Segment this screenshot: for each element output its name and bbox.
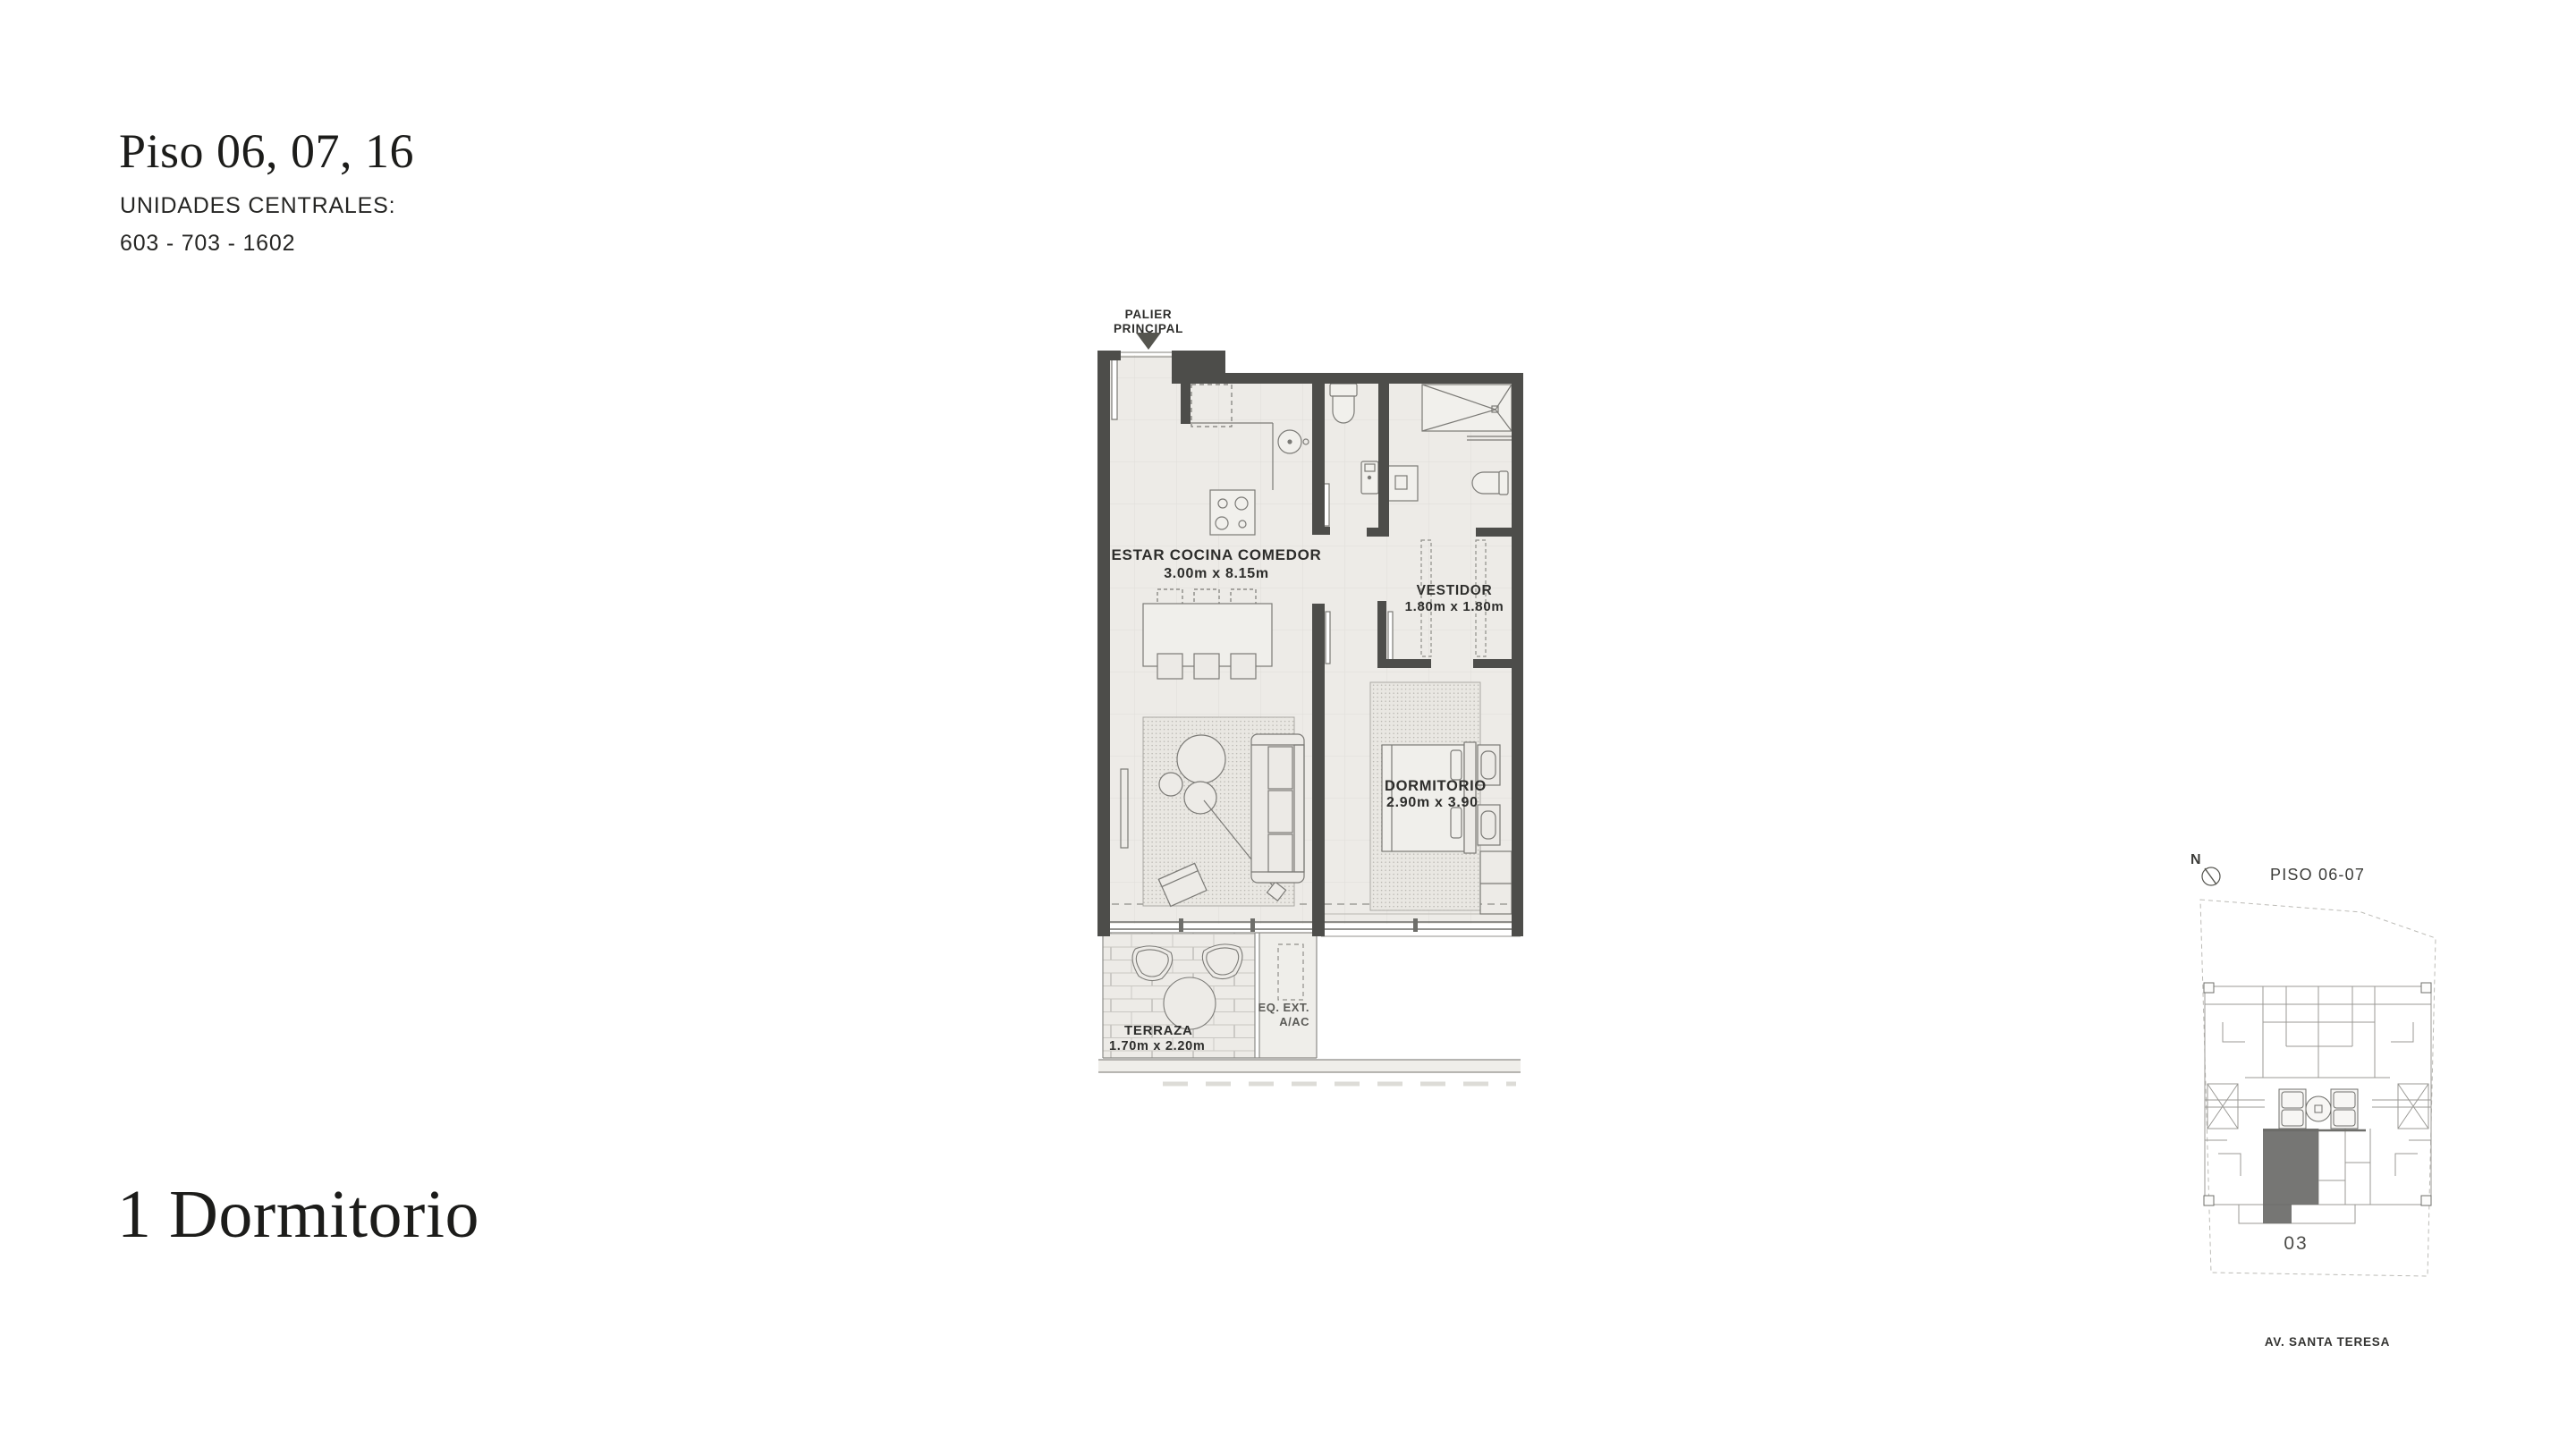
units-numbers: 603 - 703 - 1602: [120, 231, 295, 257]
vanity-cabinet: [1388, 466, 1418, 501]
entry-label: PALIER: [1125, 308, 1173, 321]
stove: [1210, 490, 1255, 535]
svg-text:1.80m x 1.80m: 1.80m x 1.80m: [1405, 599, 1504, 614]
toilet: [1330, 384, 1357, 396]
key-plan: N PISO 06-07: [2173, 841, 2455, 1359]
floor-plan: PALIER PRINCIPAL ESTAR COCINA COMEDOR 3.…: [1064, 291, 1547, 1087]
svg-text:A/AC: A/AC: [1279, 1015, 1309, 1028]
compass-icon: N: [2190, 852, 2220, 885]
typology-title: 1 Dormitorio: [117, 1180, 479, 1248]
page-title: Piso 06, 07, 16: [119, 127, 414, 175]
ac-label: EQ. EXT.: [1258, 1001, 1309, 1014]
terrace-table: [1164, 977, 1216, 1029]
building-core: [2263, 1089, 2366, 1130]
keyplan-title: PISO 06-07: [2270, 866, 2365, 884]
living-area: [1121, 717, 1304, 906]
corridor-door: [1326, 612, 1330, 664]
svg-text:PRINCIPAL: PRINCIPAL: [1114, 322, 1183, 335]
street-label: AV. SANTA TERESA: [2265, 1335, 2390, 1349]
svg-text:1.70m x 2.20m: 1.70m x 2.20m: [1109, 1039, 1205, 1053]
terrace-label: TERRAZA: [1124, 1023, 1193, 1038]
vestidor-label: VESTIDOR: [1417, 583, 1493, 598]
units-subtitle: UNIDADES CENTRALES:: [120, 193, 395, 219]
svg-text:3.00m x 8.15m: 3.00m x 8.15m: [1164, 566, 1269, 581]
highlighted-unit: [2263, 1129, 2318, 1223]
page: { "header": { "title": "Piso 06, 07, 16"…: [0, 0, 2576, 1438]
svg-text:2.90m x 3.90: 2.90m x 3.90: [1386, 795, 1479, 810]
slab-band: [1098, 1060, 1521, 1084]
sofa: [1251, 734, 1304, 883]
svg-text:N: N: [2190, 852, 2201, 867]
entry-door: [1112, 359, 1117, 419]
living-label: ESTAR COCINA COMEDOR: [1112, 546, 1322, 563]
unit-number-label: 03: [2284, 1233, 2308, 1254]
coffee-table: [1177, 735, 1225, 783]
toilet: [1472, 472, 1499, 494]
bedroom-label: DORMITORIO: [1385, 778, 1487, 794]
vestidor-door: [1388, 612, 1393, 662]
